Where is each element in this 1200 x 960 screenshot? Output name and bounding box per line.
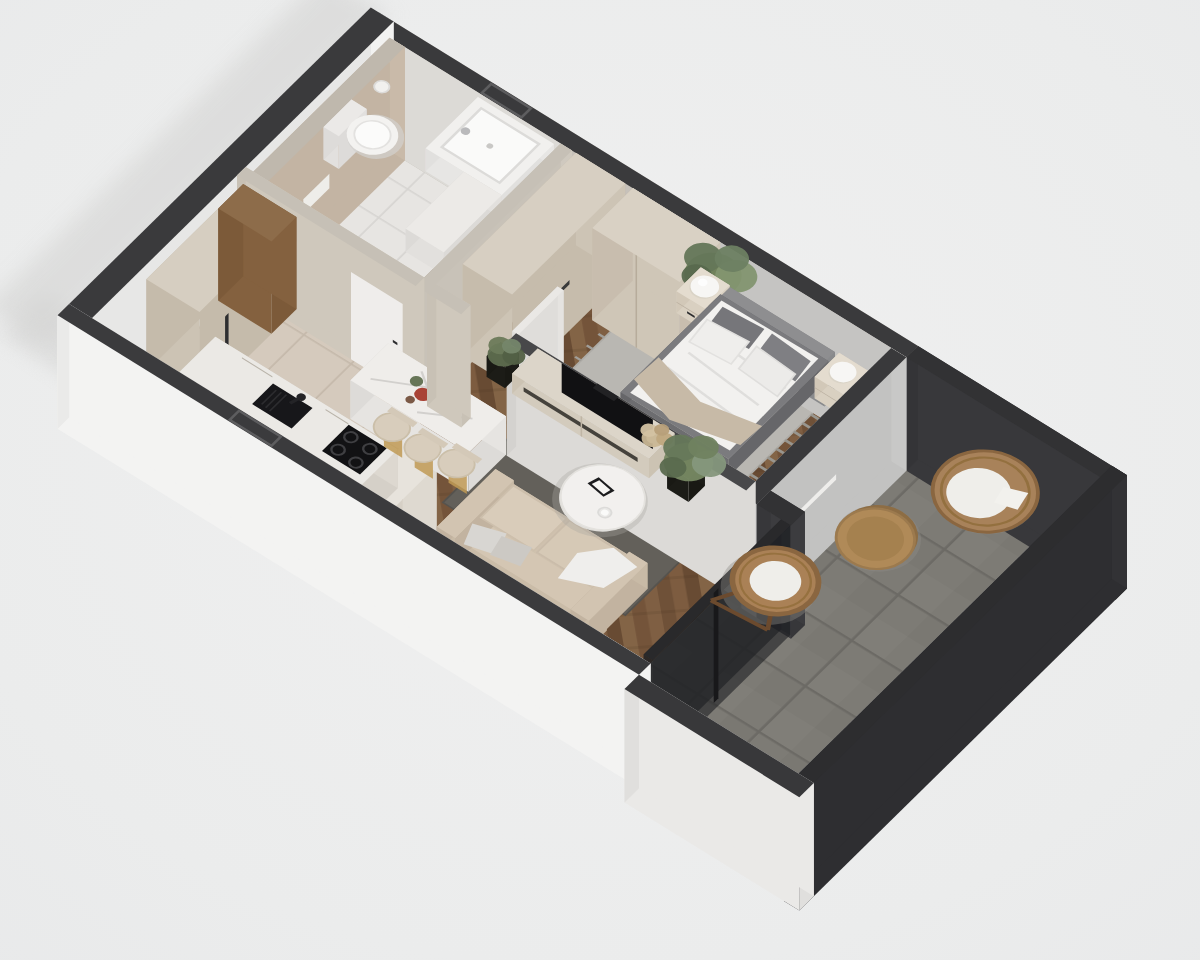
floor-plan-render [0, 0, 1200, 960]
floor-plan-stage [0, 0, 1200, 960]
